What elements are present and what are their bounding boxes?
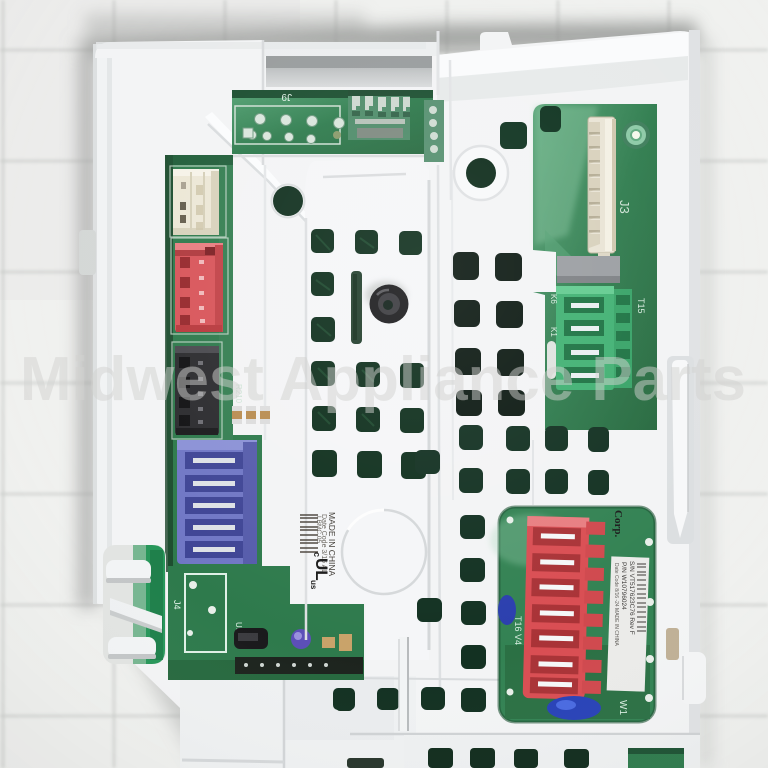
svg-text:K1: K1 <box>549 327 558 337</box>
svg-text:T16 V4: T16 V4 <box>513 616 523 645</box>
svg-text:LBMC 05: LBMC 05 <box>315 516 322 543</box>
svg-text:us: us <box>309 580 318 590</box>
svg-text:J3: J3 <box>617 200 632 214</box>
svg-text:P/N W10796024: P/N W10796024 <box>620 562 627 610</box>
svg-text:Corp.: Corp. <box>612 510 624 537</box>
svg-text:J9: J9 <box>281 91 292 102</box>
svg-text:T15: T15 <box>636 298 646 314</box>
svg-text:K6: K6 <box>549 294 558 304</box>
svg-text:UL: UL <box>312 558 331 581</box>
svg-text:Date Code 8/16 -24 MADE IN C: Date Code 8/16 -24 MADE IN CHINA <box>613 563 619 646</box>
svg-text:c: c <box>312 552 322 557</box>
svg-text:S/N VT517623C76 Rev F: S/N VT517623C76 Rev F <box>628 561 635 635</box>
svg-text:Midwest Appliance Parts: Midwest Appliance Parts <box>20 345 746 414</box>
svg-text:W1: W1 <box>617 700 628 715</box>
svg-text:J4: J4 <box>172 600 182 610</box>
